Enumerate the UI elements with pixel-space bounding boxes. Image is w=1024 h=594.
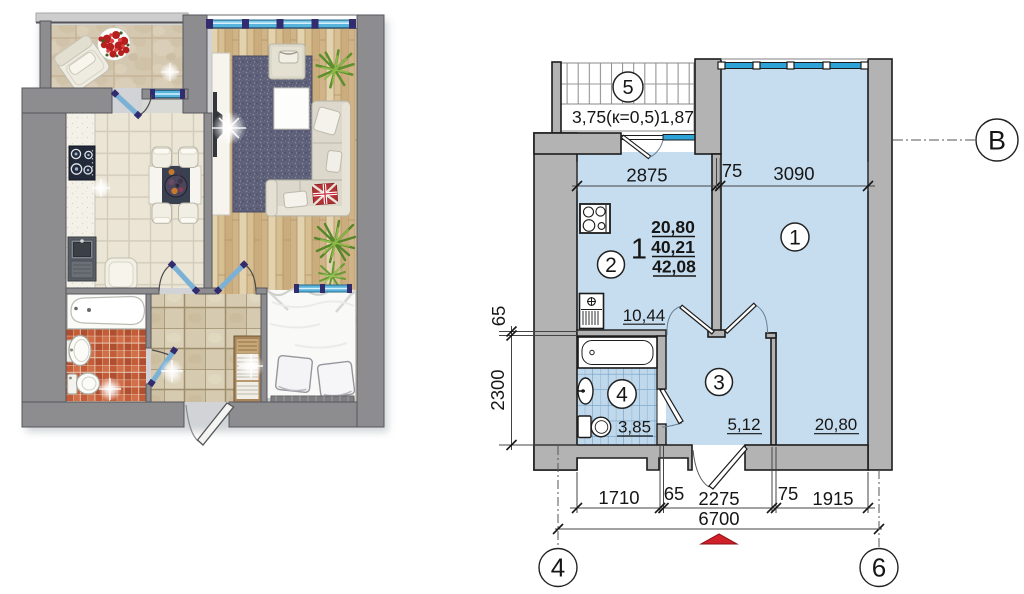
svg-text:1: 1 <box>631 234 647 266</box>
svg-text:1710: 1710 <box>598 487 639 508</box>
svg-text:2300: 2300 <box>487 369 508 410</box>
svg-text:4: 4 <box>616 384 628 407</box>
svg-text:5: 5 <box>622 77 633 99</box>
svg-text:75: 75 <box>778 483 799 504</box>
svg-text:20,80: 20,80 <box>815 415 858 434</box>
svg-text:65: 65 <box>664 483 685 504</box>
svg-text:2875: 2875 <box>626 165 667 186</box>
svg-text:3,85: 3,85 <box>618 418 651 437</box>
svg-text:3090: 3090 <box>773 163 814 184</box>
svg-text:4: 4 <box>551 553 565 583</box>
svg-text:6700: 6700 <box>698 508 739 529</box>
svg-text:2275: 2275 <box>698 488 739 509</box>
svg-text:42,08: 42,08 <box>652 257 696 277</box>
svg-text:65: 65 <box>488 306 509 327</box>
svg-text:1: 1 <box>789 227 801 250</box>
svg-text:2: 2 <box>605 254 617 277</box>
svg-text:40,21: 40,21 <box>651 237 695 257</box>
svg-text:20,80: 20,80 <box>651 217 695 237</box>
svg-text:1915: 1915 <box>812 488 853 509</box>
svg-text:75: 75 <box>722 160 743 181</box>
svg-text:10,44: 10,44 <box>623 306 666 325</box>
svg-text:B: B <box>988 126 1006 156</box>
svg-text:3: 3 <box>713 372 725 395</box>
svg-text:6: 6 <box>872 553 886 583</box>
svg-text:5,12: 5,12 <box>727 415 760 434</box>
svg-text:3,75(к=0,5)1,87: 3,75(к=0,5)1,87 <box>572 107 694 127</box>
